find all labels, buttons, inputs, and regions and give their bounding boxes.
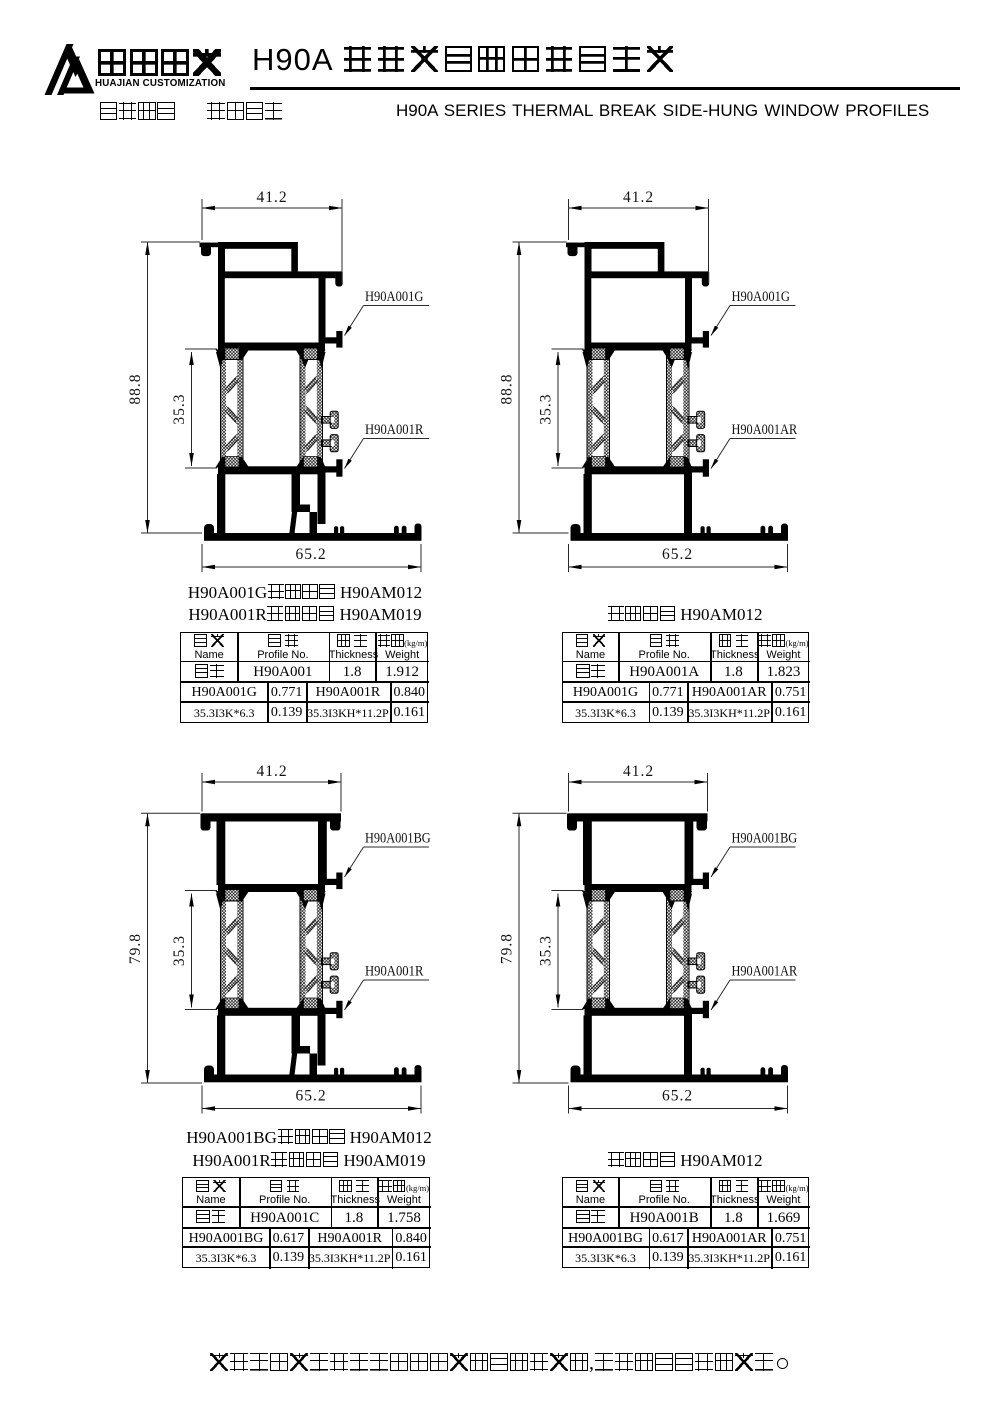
- svg-text:79.8: 79.8: [499, 933, 516, 964]
- svg-text:H90A001AR: H90A001AR: [732, 963, 798, 980]
- svg-text:79.8: 79.8: [127, 933, 144, 964]
- svg-text:35.3: 35.3: [538, 935, 555, 966]
- svg-text:35.3: 35.3: [171, 393, 188, 424]
- svg-text:H90A001R: H90A001R: [365, 963, 424, 980]
- svg-text:65.2: 65.2: [295, 1088, 326, 1105]
- svg-text:H90A001AR: H90A001AR: [732, 421, 798, 438]
- svg-text:35.3: 35.3: [538, 393, 555, 424]
- svg-text:88.8: 88.8: [499, 373, 516, 404]
- svg-text:65.2: 65.2: [662, 546, 693, 563]
- svg-text:H90A001G: H90A001G: [365, 288, 423, 305]
- svg-text:H90A001BG: H90A001BG: [365, 830, 431, 847]
- svg-text:41.2: 41.2: [623, 763, 654, 780]
- svg-text:65.2: 65.2: [662, 1088, 693, 1105]
- svg-text:H90A001BG: H90A001BG: [732, 830, 798, 847]
- svg-text:H90A001G: H90A001G: [732, 288, 790, 305]
- svg-text:35.3: 35.3: [171, 935, 188, 966]
- svg-text:41.2: 41.2: [256, 763, 287, 780]
- svg-text:H90A001R: H90A001R: [365, 421, 424, 438]
- svg-text:41.2: 41.2: [256, 189, 287, 206]
- svg-text:65.2: 65.2: [295, 546, 326, 563]
- svg-text:41.2: 41.2: [623, 189, 654, 206]
- svg-text:88.8: 88.8: [127, 373, 144, 404]
